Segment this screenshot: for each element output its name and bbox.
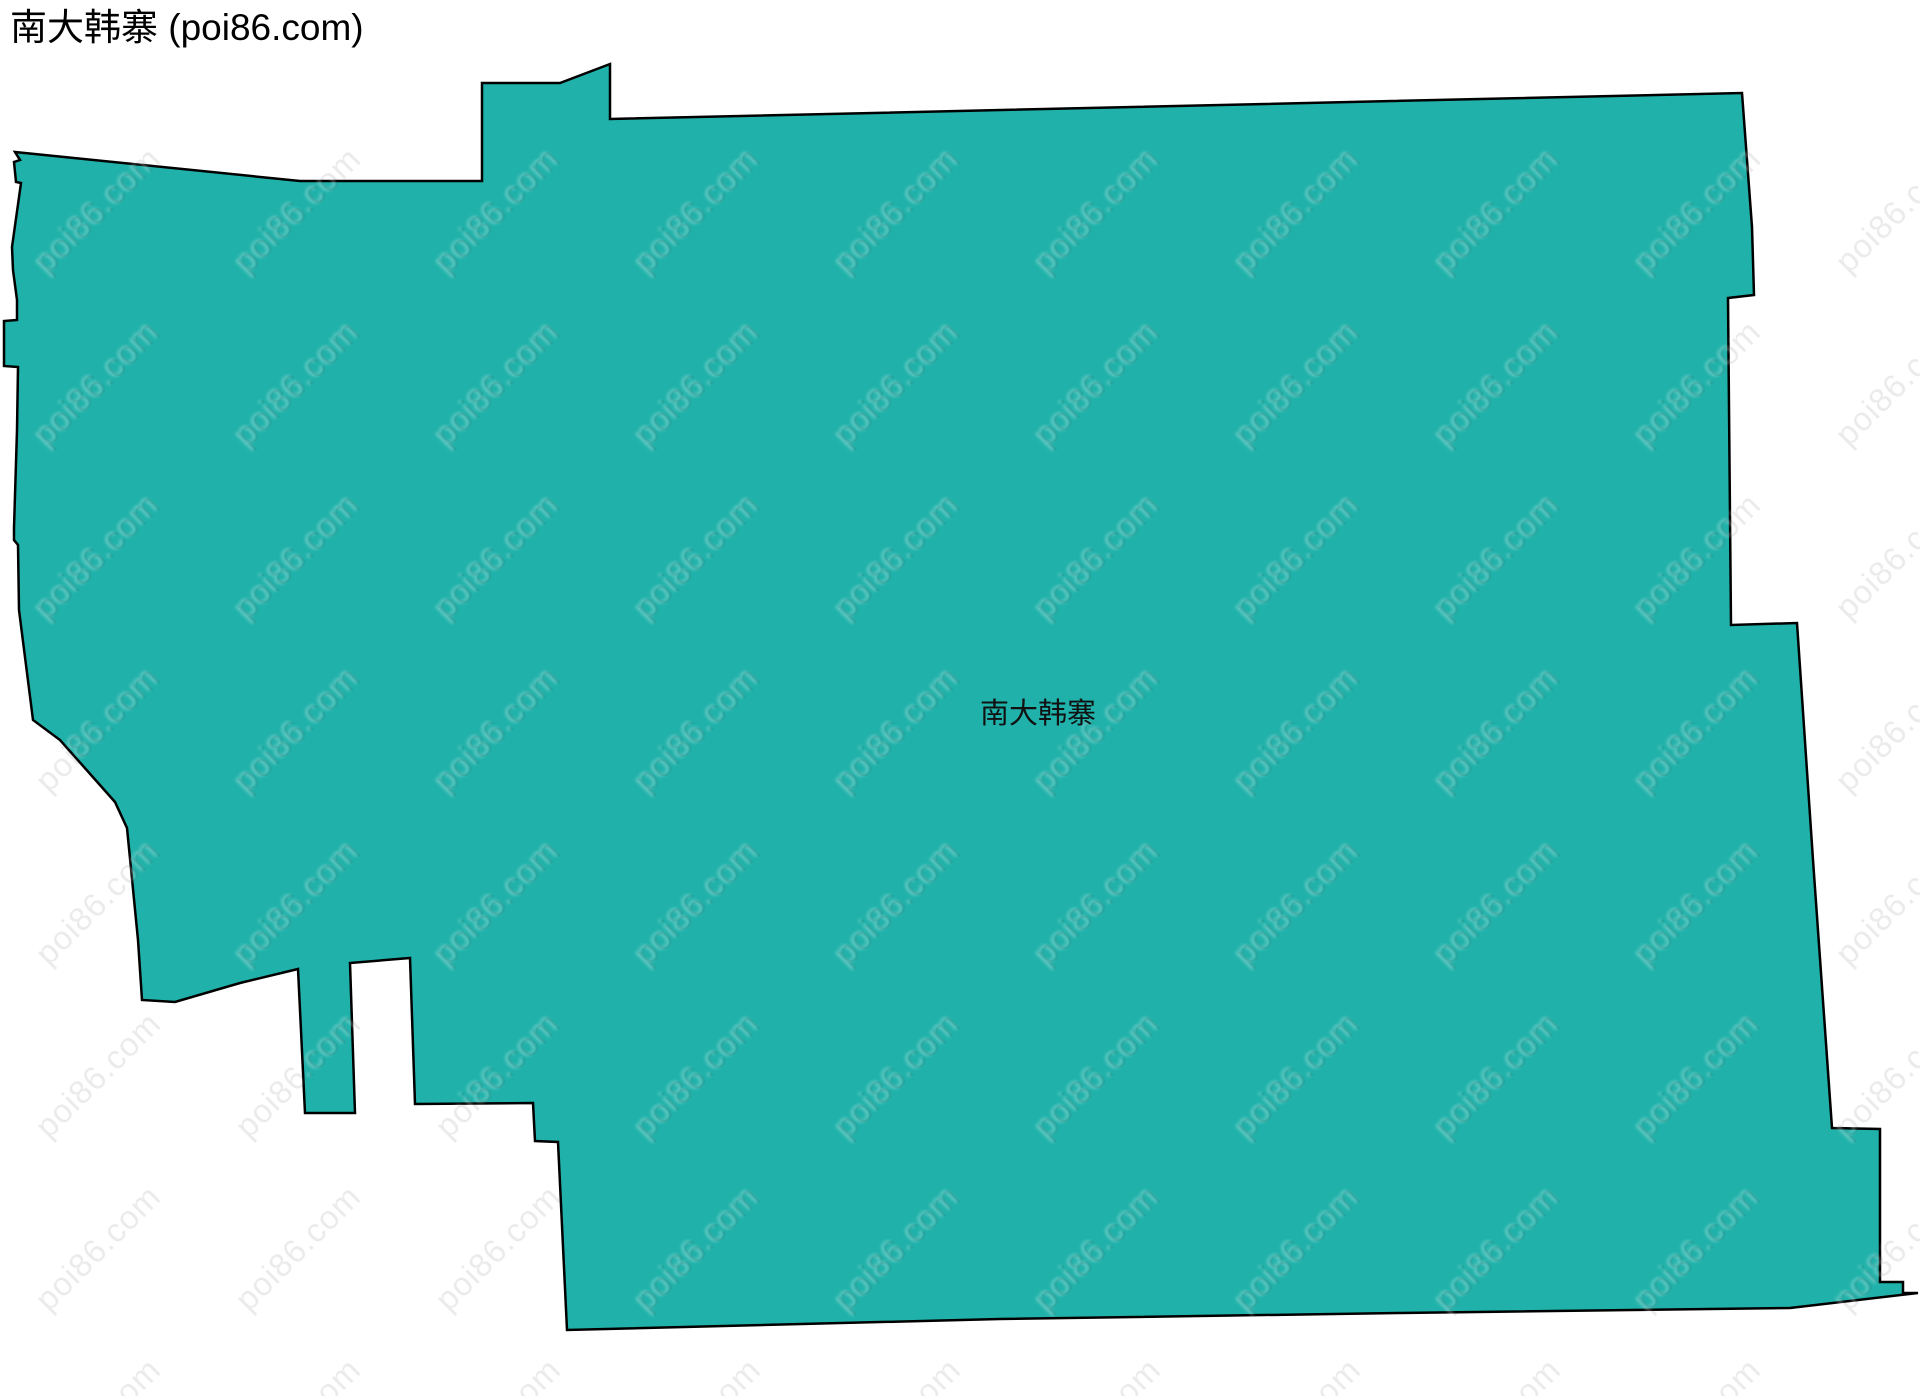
page-title: 南大韩寨 (poi86.com) bbox=[10, 6, 364, 50]
region-map-svg bbox=[0, 0, 1920, 1396]
region-polygon bbox=[4, 64, 1918, 1330]
map-canvas: poi86.compoi86.compoi86.compoi86.compoi8… bbox=[0, 0, 1920, 1396]
region-label: 南大韩寨 bbox=[980, 690, 1096, 732]
